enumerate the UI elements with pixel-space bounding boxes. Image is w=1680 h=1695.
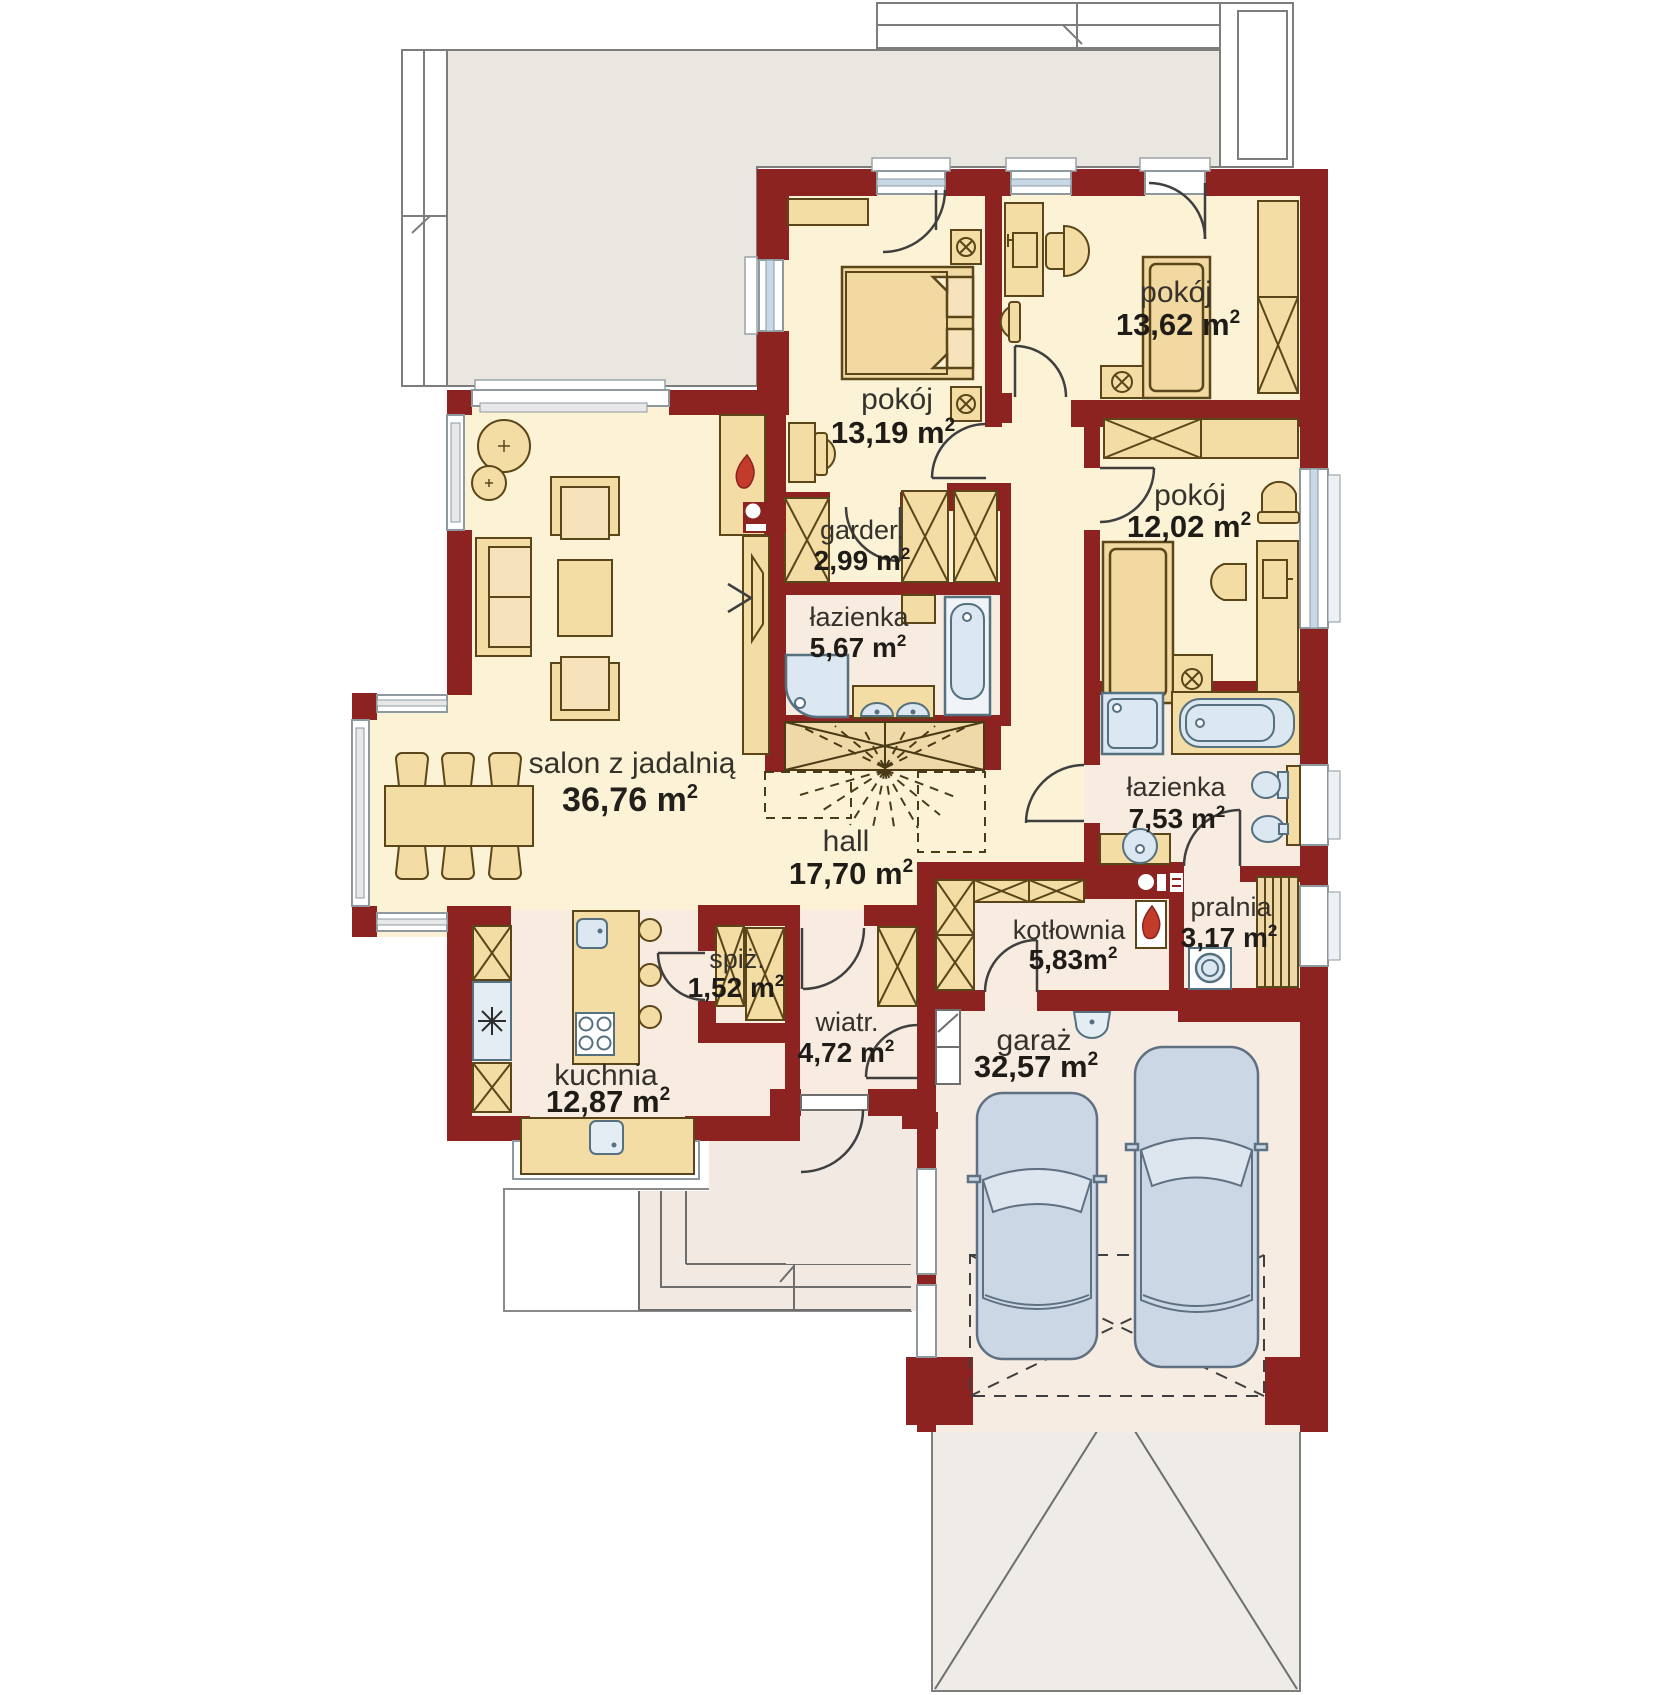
svg-text:pokój: pokój [861, 383, 933, 416]
svg-text:łazienka: łazienka [1126, 772, 1226, 802]
svg-text:5,83m2: 5,83m2 [1029, 943, 1118, 975]
svg-text:pokój: pokój [1154, 479, 1226, 512]
svg-text:spiż.: spiż. [709, 944, 765, 974]
svg-text:łazienka: łazienka [809, 602, 909, 632]
svg-text:pokój: pokój [1140, 276, 1212, 309]
svg-text:36,76 m2: 36,76 m2 [562, 781, 698, 819]
svg-text:4,72 m2: 4,72 m2 [798, 1036, 895, 1068]
svg-text:1,52 m2: 1,52 m2 [688, 971, 785, 1003]
svg-text:garder.: garder. [820, 515, 904, 545]
svg-text:pralnia: pralnia [1190, 892, 1272, 922]
svg-text:12,02 m2: 12,02 m2 [1127, 509, 1251, 544]
svg-text:hall: hall [823, 825, 870, 858]
svg-text:5,67 m2: 5,67 m2 [810, 631, 907, 663]
svg-text:2,99 m2: 2,99 m2 [814, 544, 911, 576]
svg-text:salon z jadalnią: salon z jadalnią [529, 747, 736, 780]
svg-text:13,19 m2: 13,19 m2 [831, 415, 955, 450]
svg-text:13,62 m2: 13,62 m2 [1116, 307, 1240, 342]
svg-text:7,53 m2: 7,53 m2 [1129, 802, 1226, 834]
svg-text:32,57 m2: 32,57 m2 [974, 1049, 1098, 1084]
svg-text:3,17 m2: 3,17 m2 [1181, 921, 1278, 953]
svg-text:17,70 m2: 17,70 m2 [789, 856, 913, 891]
svg-text:wiatr.: wiatr. [814, 1007, 878, 1037]
svg-text:12,87 m2: 12,87 m2 [546, 1084, 670, 1119]
svg-text:kotłownia: kotłownia [1013, 915, 1127, 945]
